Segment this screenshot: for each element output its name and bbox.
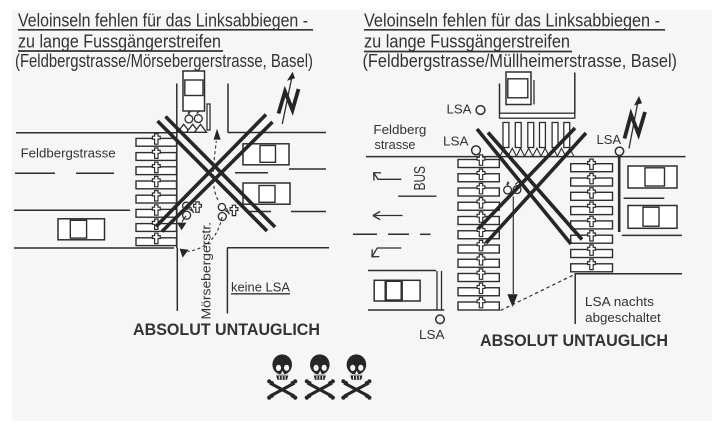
svg-text:zu lange Fussgängerstreifen: zu lange Fussgängerstreifen: [364, 31, 570, 52]
svg-text:keine LSA: keine LSA: [231, 280, 290, 295]
svg-text:LSA: LSA: [597, 132, 622, 147]
svg-text:ABSOLUT UNTAUGLICH: ABSOLUT UNTAUGLICH: [133, 320, 320, 339]
svg-text:Veloinseln fehlen für das Link: Veloinseln fehlen für das Linksabbiegen …: [364, 9, 660, 30]
svg-text:(Feldbergstrasse/Müllheimerstr: (Feldbergstrasse/Müllheimerstrasse, Base…: [363, 50, 678, 71]
svg-text:LSA: LSA: [443, 134, 469, 149]
svg-text:Mörsebergerstr.: Mörsebergerstr.: [199, 222, 214, 320]
svg-text:zu lange Fussgängerstreifen: zu lange Fussgängerstreifen: [18, 31, 221, 52]
svg-text:LSA: LSA: [447, 102, 472, 117]
svg-text:LSA nachts: LSA nachts: [585, 295, 654, 309]
svg-text:LSA: LSA: [419, 327, 445, 342]
svg-text:Veloinseln fehlen für das Link: Veloinseln fehlen für das Linksabbiegen …: [18, 9, 308, 30]
svg-text:Feldberg: Feldberg: [373, 123, 426, 137]
svg-text:abgeschaltet: abgeschaltet: [585, 311, 661, 325]
svg-text:strasse: strasse: [375, 138, 416, 152]
svg-text:ABSOLUT UNTAUGLICH: ABSOLUT UNTAUGLICH: [480, 331, 668, 350]
svg-text:(Feldbergstrasse/Mörsebergerst: (Feldbergstrasse/Mörsebergerstrasse, Bas…: [15, 50, 313, 71]
svg-text:Feldbergstrasse: Feldbergstrasse: [21, 147, 116, 161]
svg-text:BUS: BUS: [412, 166, 429, 191]
